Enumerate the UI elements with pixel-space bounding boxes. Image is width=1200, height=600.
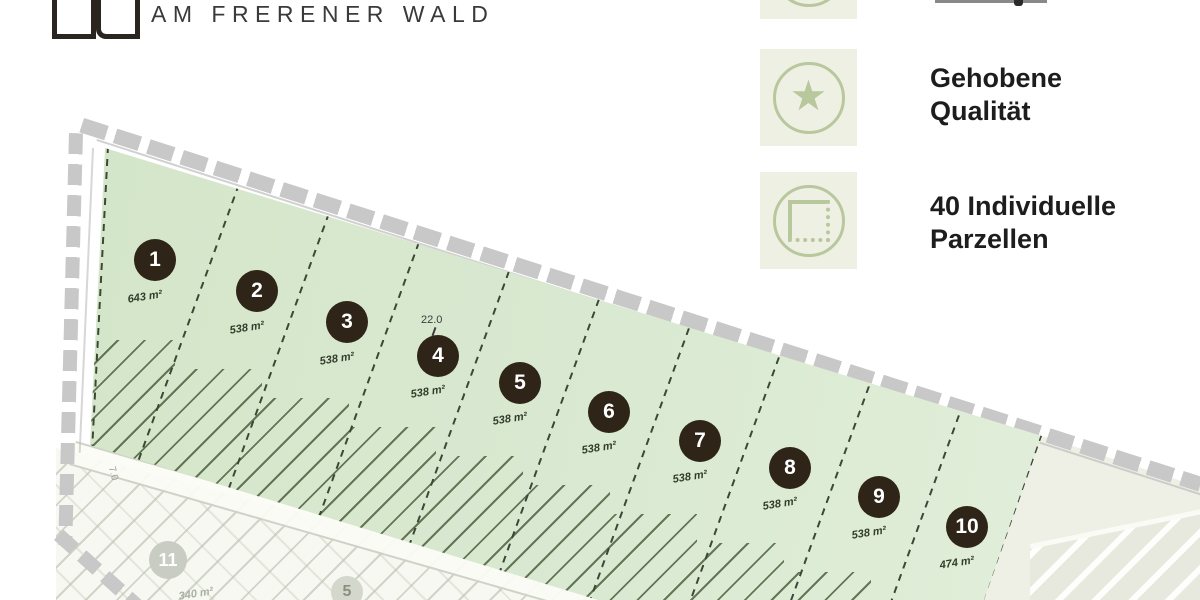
parcel-marker: 1 bbox=[134, 239, 176, 281]
logo-glyph-right bbox=[96, 0, 140, 39]
parcel-area-label: 474 m² bbox=[939, 554, 975, 571]
parcel-marker: 6 bbox=[588, 391, 630, 433]
feature-label-quality: Gehobene Qualität bbox=[930, 62, 1170, 128]
parcel-area-label: 538 m² bbox=[410, 383, 446, 400]
brand-title: AM FRERENER WALD bbox=[151, 1, 494, 27]
parcel-marker: 10 bbox=[946, 506, 988, 548]
star-icon: ★ bbox=[773, 62, 845, 134]
site-plan-page: AM FRERENER WALD ★ Gehobene Qualität 40 … bbox=[0, 0, 1200, 600]
logo-glyph-left bbox=[52, 0, 96, 39]
cropped-heading-fragment bbox=[935, 0, 1047, 3]
parcel-area-label: 538 m² bbox=[492, 410, 528, 427]
parcel-area-label: 643 m² bbox=[127, 288, 163, 305]
feature-tile-quality: ★ bbox=[760, 49, 857, 146]
parcel-marker: 2 bbox=[236, 270, 278, 312]
parcel-marker: 4 bbox=[417, 335, 459, 377]
parcel-area-label: 538 m² bbox=[762, 495, 798, 512]
cropped-heading-fragment bbox=[1014, 0, 1023, 6]
parcel-area-label: 538 m² bbox=[581, 439, 617, 456]
parcel-marker: 5 bbox=[499, 362, 541, 404]
dimension-label: 22.0 bbox=[421, 314, 442, 326]
feature-label-parcels: 40 Individuelle Parzellen bbox=[930, 190, 1170, 256]
parcel-area-label: 538 m² bbox=[672, 468, 708, 485]
feature-tile-cropped bbox=[760, 0, 857, 19]
parcel-marker: 7 bbox=[679, 420, 721, 462]
feature-tile-parcels bbox=[760, 172, 857, 269]
parcel-marker: 9 bbox=[858, 476, 900, 518]
parcel-marker: 3 bbox=[326, 301, 368, 343]
circle-ring-icon bbox=[773, 0, 845, 7]
parcel-marker-faded-cropped: 5 bbox=[331, 576, 363, 600]
parcel-marker-faded: 11 bbox=[149, 541, 187, 579]
parcel-outline-icon bbox=[773, 185, 845, 257]
parcel-area-label: 538 m² bbox=[229, 319, 265, 336]
parcel-area-label: 538 m² bbox=[319, 350, 355, 367]
parcel-marker: 8 bbox=[769, 447, 811, 489]
parcel-area-label: 538 m² bbox=[851, 524, 887, 541]
